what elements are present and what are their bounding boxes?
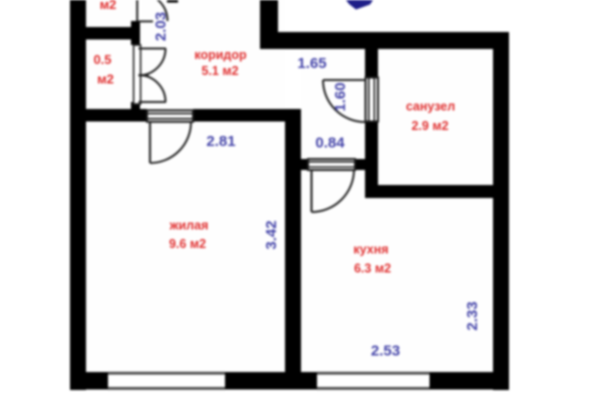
svg-text:м2: м2 <box>97 72 114 87</box>
svg-text:м2: м2 <box>100 0 117 12</box>
svg-text:коридор: коридор <box>194 48 247 62</box>
svg-text:жилая: жилая <box>169 219 209 233</box>
svg-text:1.65: 1.65 <box>297 55 326 72</box>
svg-text:2.53: 2.53 <box>371 343 400 360</box>
svg-text:3.42: 3.42 <box>263 220 280 249</box>
svg-text:0.84: 0.84 <box>315 134 345 151</box>
svg-text:0.5: 0.5 <box>93 52 111 67</box>
svg-text:5.1 м2: 5.1 м2 <box>201 64 238 78</box>
svg-text:1.60: 1.60 <box>332 82 349 111</box>
svg-text:2.81: 2.81 <box>206 133 235 150</box>
svg-text:2.33: 2.33 <box>464 301 481 330</box>
svg-text:санузел: санузел <box>406 100 455 114</box>
svg-text:2.9 м2: 2.9 м2 <box>411 119 448 133</box>
svg-text:2.03: 2.03 <box>153 12 170 41</box>
svg-text:9.6 м2: 9.6 м2 <box>169 237 206 251</box>
svg-text:кухня: кухня <box>353 243 388 257</box>
svg-text:6.3 м2: 6.3 м2 <box>354 262 391 276</box>
